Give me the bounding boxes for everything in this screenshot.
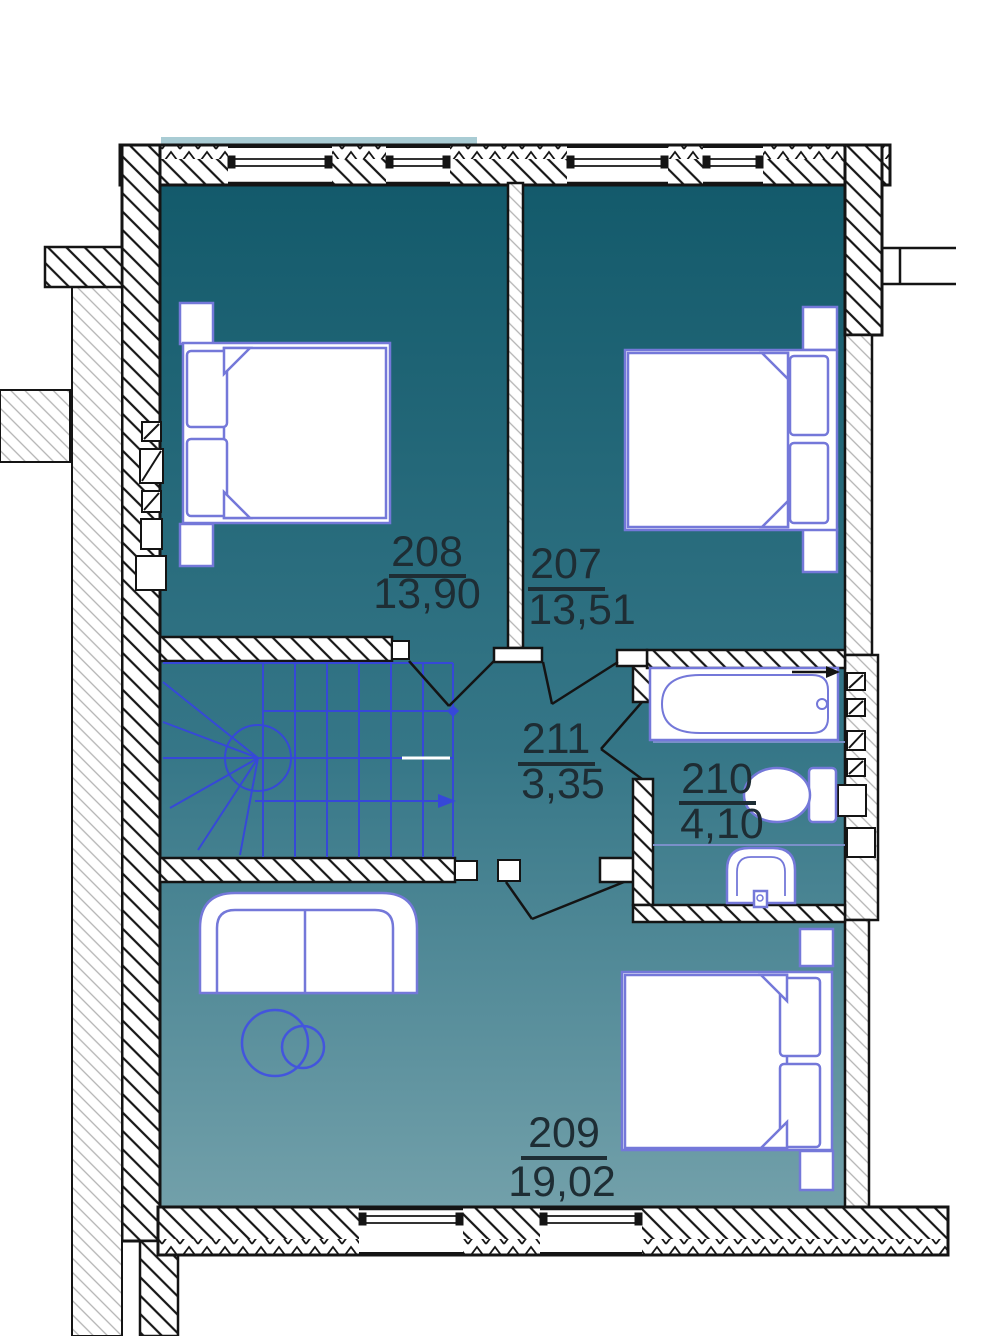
stair-bottom-wall bbox=[160, 858, 455, 882]
shaft-left-3 bbox=[142, 491, 161, 512]
room-number: 209 bbox=[528, 1109, 600, 1157]
nightstand bbox=[803, 307, 837, 350]
nightstand bbox=[180, 524, 213, 566]
room-area: 19,02 bbox=[508, 1158, 616, 1206]
shaft-right-3 bbox=[847, 731, 865, 750]
stair-bottom-wall-jamb-2 bbox=[498, 860, 520, 881]
bathroom-left-wall-lower bbox=[633, 779, 653, 905]
stair-top-wall-jamb bbox=[392, 641, 409, 659]
toilet-tank bbox=[809, 768, 836, 822]
nightstand bbox=[180, 303, 213, 344]
mattress bbox=[224, 348, 386, 518]
left-wall-cladding bbox=[72, 285, 122, 1336]
room-area: 3,35 bbox=[521, 760, 605, 808]
shaft-right-5 bbox=[838, 785, 866, 816]
right-wall-mid bbox=[845, 335, 872, 655]
pillow bbox=[187, 439, 227, 516]
room-area: 13,90 bbox=[373, 570, 481, 618]
left-wall bbox=[0, 145, 178, 1336]
shaft-right-6 bbox=[847, 828, 875, 857]
floor-plan-drawing: 208 13,90 207 13,51 211 3,35 210 4,10 20… bbox=[0, 0, 999, 1336]
nightstand bbox=[800, 1151, 833, 1190]
bathroom-bottom-wall bbox=[633, 905, 845, 922]
room-number: 207 bbox=[530, 540, 602, 588]
washbasin-tap bbox=[754, 891, 767, 907]
pillow bbox=[187, 351, 227, 427]
partition-207-208-jamb bbox=[494, 648, 542, 662]
right-wall-bottom bbox=[845, 920, 869, 1207]
window-4 bbox=[703, 147, 763, 183]
room-label-210: 210 4,10 bbox=[679, 755, 764, 848]
room-number: 208 bbox=[391, 528, 463, 576]
window-5 bbox=[359, 1209, 463, 1253]
room-number: 210 bbox=[681, 755, 753, 803]
floor-plan-page: 208 13,90 207 13,51 211 3,35 210 4,10 20… bbox=[0, 0, 999, 1336]
left-wall-stub bbox=[45, 247, 122, 287]
partition-207-208 bbox=[508, 183, 523, 648]
room-number: 211 bbox=[522, 715, 591, 763]
pillow bbox=[790, 356, 828, 435]
bathtub bbox=[650, 668, 838, 740]
pillow bbox=[790, 443, 828, 523]
left-wall-masonry bbox=[122, 145, 160, 1241]
room-area: 13,51 bbox=[528, 586, 636, 634]
window-1 bbox=[228, 147, 332, 183]
mattress bbox=[628, 353, 788, 527]
shaft-left-4 bbox=[141, 519, 162, 549]
window-3 bbox=[567, 147, 668, 183]
left-neighbor-wall bbox=[0, 390, 70, 462]
nightstand bbox=[800, 929, 833, 966]
hall-209-jamb bbox=[600, 858, 634, 882]
stair-bottom-wall-jamb-1 bbox=[455, 861, 477, 880]
washbasin bbox=[727, 848, 795, 907]
stair-top-wall bbox=[160, 637, 392, 661]
window-6 bbox=[540, 1209, 642, 1253]
mattress bbox=[625, 975, 787, 1148]
nightstand bbox=[803, 529, 837, 572]
right-wall-top bbox=[845, 145, 882, 335]
shaft-left-1 bbox=[142, 422, 161, 441]
sofa bbox=[200, 893, 417, 993]
shaft-right-4 bbox=[847, 759, 865, 776]
bathroom-top-wall bbox=[647, 650, 845, 668]
shaft-right-2 bbox=[847, 699, 865, 716]
room-area: 4,10 bbox=[680, 800, 764, 848]
shaft-right-1 bbox=[847, 673, 865, 690]
bathroom-top-wall-jamb bbox=[617, 650, 647, 666]
shaft-left-2 bbox=[140, 449, 163, 483]
shaft-left-5 bbox=[136, 556, 166, 590]
window-2 bbox=[386, 147, 450, 183]
